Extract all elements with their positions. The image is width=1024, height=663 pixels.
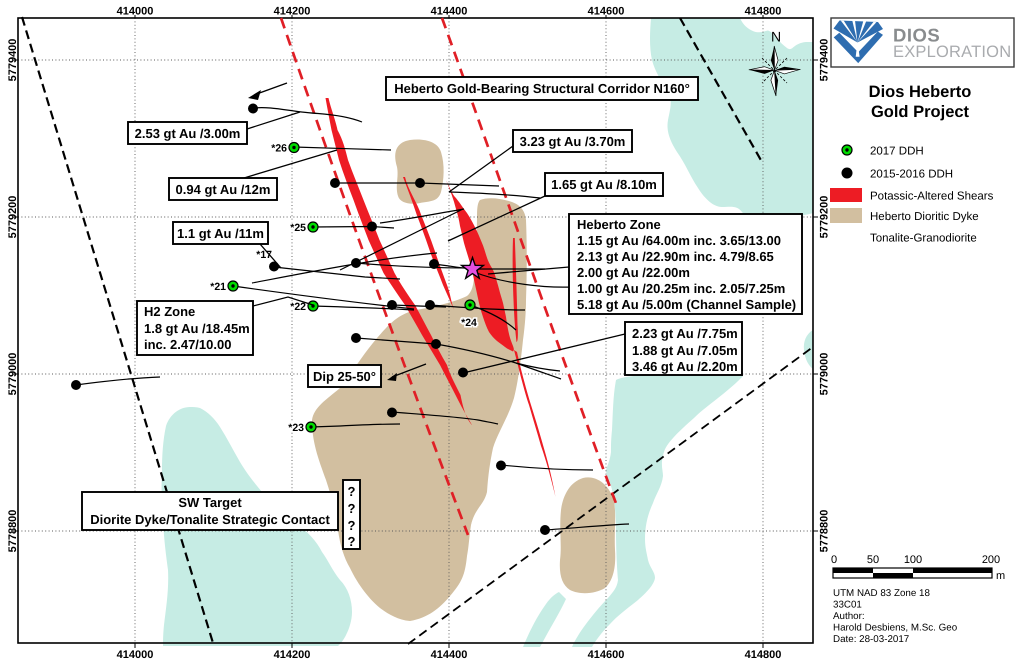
- svg-text:Gold Project: Gold Project: [871, 103, 970, 121]
- svg-text:100: 100: [904, 554, 922, 566]
- svg-text:1.65 gt Au /8.10m: 1.65 gt Au /8.10m: [551, 177, 657, 192]
- svg-text:3.23 gt Au /3.70m: 3.23 gt Au /3.70m: [520, 134, 626, 149]
- svg-text:?: ?: [348, 501, 356, 516]
- svg-text:*21: *21: [210, 281, 226, 293]
- svg-text:*25: *25: [290, 222, 306, 234]
- svg-text:Date: 28-03-2017: Date: 28-03-2017: [833, 634, 909, 645]
- svg-text:Dip 25-50°: Dip 25-50°: [313, 369, 376, 384]
- svg-text:UTM NAD 83 Zone 18: UTM NAD 83 Zone 18: [833, 588, 930, 599]
- svg-text:*23: *23: [288, 422, 304, 434]
- svg-text:1.00 gt Au /20.25m inc. 2.05/7: 1.00 gt Au /20.25m inc. 2.05/7.25m: [577, 281, 785, 296]
- svg-text:5779000: 5779000: [7, 353, 19, 396]
- svg-text:H2 Zone: H2 Zone: [144, 304, 195, 319]
- svg-text:0: 0: [831, 554, 837, 566]
- svg-text:2.00 gt Au /22.00m: 2.00 gt Au /22.00m: [577, 265, 690, 280]
- svg-text:1.8 gt Au /18.45m: 1.8 gt Au /18.45m: [144, 321, 250, 336]
- svg-text:414800: 414800: [745, 649, 782, 661]
- svg-text:2.23 gt Au /7.75m: 2.23 gt Au /7.75m: [632, 326, 738, 341]
- svg-text:Dios Heberto: Dios Heberto: [869, 83, 972, 101]
- svg-text:*22: *22: [290, 301, 306, 313]
- svg-text:414600: 414600: [588, 649, 625, 661]
- svg-text:2017 DDH: 2017 DDH: [870, 146, 924, 158]
- svg-text:414800: 414800: [745, 6, 782, 18]
- svg-text:5779200: 5779200: [819, 196, 831, 239]
- svg-text:414000: 414000: [117, 6, 154, 18]
- svg-text:EXPLORATION: EXPLORATION: [893, 43, 1011, 61]
- svg-text:5779200: 5779200: [7, 196, 19, 239]
- svg-text:3.46 gt Au /2.20m: 3.46 gt Au /2.20m: [632, 359, 738, 374]
- svg-text:5778800: 5778800: [819, 510, 831, 553]
- svg-text:5.18 gt Au /5.00m (Channel Sam: 5.18 gt Au /5.00m (Channel Sample): [577, 297, 796, 312]
- svg-text:414400: 414400: [431, 649, 468, 661]
- svg-text:5778800: 5778800: [7, 510, 19, 553]
- svg-text:50: 50: [867, 554, 879, 566]
- svg-text:414400: 414400: [431, 6, 468, 18]
- svg-text:1.1 gt Au /11m: 1.1 gt Au /11m: [177, 226, 264, 241]
- svg-text:Diorite Dyke/Tonalite Strategi: Diorite Dyke/Tonalite Strategic Contact: [90, 512, 330, 527]
- svg-text:Author:: Author:: [833, 611, 865, 622]
- svg-text:*24: *24: [461, 317, 477, 329]
- svg-text:?: ?: [348, 534, 356, 549]
- svg-text:Potassic-Altered Shears: Potassic-Altered Shears: [870, 191, 994, 203]
- svg-text:5779400: 5779400: [819, 39, 831, 82]
- svg-text:5779000: 5779000: [819, 353, 831, 396]
- svg-text:0.94 gt Au /12m: 0.94 gt Au /12m: [176, 182, 271, 197]
- svg-text:Tonalite-Granodiorite: Tonalite-Granodiorite: [870, 233, 977, 245]
- svg-text:2.13 gt Au /22.90m inc. 4.79/8: 2.13 gt Au /22.90m inc. 4.79/8.65: [577, 249, 774, 264]
- svg-text:SW Target: SW Target: [178, 495, 242, 510]
- svg-text:?: ?: [348, 484, 356, 499]
- svg-text:2015-2016 DDH: 2015-2016 DDH: [870, 169, 953, 181]
- svg-text:33C01: 33C01: [833, 600, 862, 611]
- svg-text:?: ?: [348, 518, 356, 533]
- svg-text:414200: 414200: [274, 6, 311, 18]
- svg-text:Heberto Zone: Heberto Zone: [577, 217, 661, 232]
- svg-text:414600: 414600: [588, 6, 625, 18]
- svg-text:2.53 gt Au /3.00m: 2.53 gt Au /3.00m: [135, 126, 241, 141]
- svg-text:N: N: [771, 29, 781, 45]
- svg-text:200: 200: [982, 554, 1000, 566]
- svg-text:1.15 gt Au /64.00m inc. 3.65/1: 1.15 gt Au /64.00m inc. 3.65/13.00: [577, 233, 781, 248]
- svg-text:414000: 414000: [117, 649, 154, 661]
- svg-text:414200: 414200: [274, 649, 311, 661]
- svg-text:Heberto Gold-Bearing Structura: Heberto Gold-Bearing Structural Corridor…: [394, 81, 690, 96]
- svg-text:Harold Desbiens, M.Sc. Geo: Harold Desbiens, M.Sc. Geo: [833, 623, 958, 634]
- svg-text:1.88 gt Au /7.05m: 1.88 gt Au /7.05m: [632, 343, 738, 358]
- svg-text:inc. 2.47/10.00: inc. 2.47/10.00: [144, 337, 231, 352]
- svg-text:Heberto Dioritic Dyke: Heberto Dioritic Dyke: [870, 211, 979, 223]
- svg-text:m: m: [996, 570, 1005, 582]
- svg-text:5779400: 5779400: [7, 39, 19, 82]
- svg-text:*26: *26: [271, 143, 287, 155]
